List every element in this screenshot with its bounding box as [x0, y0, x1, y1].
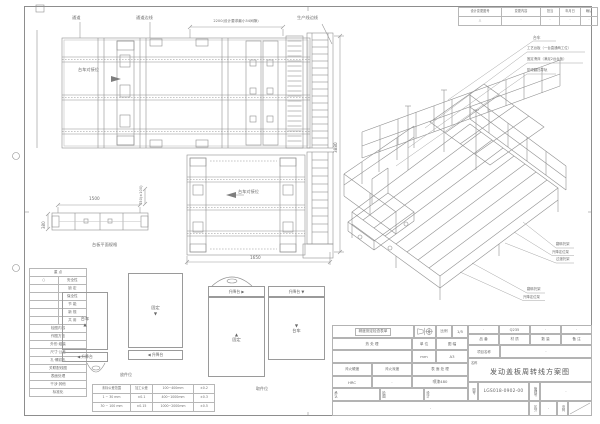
material-label: 材 质 — [499, 334, 530, 345]
rev-header: 年月日 — [560, 8, 581, 17]
tol-cell: 1000~2000mm — [153, 403, 194, 412]
tol-cell: ±0.2 — [194, 385, 215, 394]
heat-treatment-label: 热 处 理 — [332, 338, 412, 350]
iso-callout-l1: 翻转托架 — [527, 288, 541, 291]
unit-value: mm — [412, 350, 436, 363]
iso-callout-trolley: 台车 — [533, 36, 541, 40]
page-label: 页码 — [561, 405, 564, 411]
up-arrow-icon: ▲ — [83, 322, 86, 327]
rev-value: · — [541, 17, 560, 26]
iso-callout-l2: 升降定位架 — [523, 296, 540, 299]
project-label: 项目名称 — [468, 345, 500, 358]
iso-callout-bed: 固定滑床（满足2台台板） — [527, 58, 566, 61]
unit-label: 单 位 — [412, 338, 436, 350]
station-g3-lift-left: 升降台 ▶ — [208, 286, 265, 297]
station-g3-left-label: 固定 — [232, 337, 240, 343]
page-value-cell — [568, 401, 592, 416]
label-take-position: 取件位 — [256, 387, 268, 391]
station-g2-lift-label: ◀ 升降台 — [148, 352, 164, 358]
tol-cell: 加工公差 — [131, 385, 153, 394]
check-label: 检图 — [381, 391, 384, 398]
tol-cell: ±0.3 — [194, 394, 215, 403]
station-g3-lift-left-label: 升降台 ▶ — [229, 289, 245, 295]
label-put-position: 放件位 — [120, 373, 132, 377]
legend-mark — [30, 285, 59, 293]
surface-value: 喷漆480 — [412, 376, 468, 388]
station-g3-lift-right-label: 升降台 ▼ — [289, 289, 305, 295]
dwg-no-label-cell: 图号 — [468, 382, 478, 401]
design-cell: 设计 — [424, 388, 468, 401]
legend-title: 重 点 — [30, 269, 87, 277]
tol-cell: 未标公差范围 — [93, 385, 131, 394]
material-value: Q235 — [499, 325, 530, 334]
dim-380: 380 — [42, 221, 46, 229]
caption-side-view: 台板平面规格 — [92, 243, 117, 247]
class-value: · — [540, 401, 557, 416]
rev-value: △ — [459, 17, 502, 26]
dim-2200: 2200(设计要求最小54间隙) — [186, 20, 286, 24]
drawing-sheet: 设计变更图号 变更内容 担当 年月日 确认 △ · · · · 通道 通道边线 … — [0, 0, 600, 424]
station-g1-lift: ◀ 升降台 — [62, 352, 108, 362]
legend-check: 标准化 — [30, 389, 87, 397]
rev-header: 担当 — [541, 8, 560, 17]
format-label: 图 幅 — [436, 338, 468, 350]
revision-table: 设计变更图号 变更内容 担当 年月日 确认 △ · · · · — [458, 7, 598, 26]
legend-check: 表面处理 — [30, 373, 87, 381]
remark-value: · — [561, 325, 592, 334]
label-prod-edge: 生产线边线 — [297, 16, 318, 20]
tol-cell: ±0.1 — [131, 394, 153, 403]
rev-value: · — [581, 17, 598, 26]
remark-label: 备 注 — [561, 334, 592, 345]
station-g2-lift: ◀ 升降台 — [128, 350, 183, 360]
mgmt-no-value: · — [540, 382, 592, 401]
approve-label: 承认 — [333, 391, 336, 398]
mgmt-no-label-cell: 管理号 — [529, 382, 540, 401]
station-g3-box-left: ▲ 固定 — [208, 297, 265, 377]
mgmt-no-label: 管理号 — [533, 387, 536, 397]
part-no-value: · — [468, 325, 499, 334]
part-no-label: 品 番 — [468, 334, 499, 345]
label-dock-2: 台车对接位 — [238, 190, 259, 194]
tolerance-table: 未标公差范围 加工公差 100~400mm ±0.2 1 ~ 30 mm ±0.… — [92, 384, 215, 412]
tol-cell: ±0.15 — [131, 403, 153, 412]
depth-label: 淬火深度 — [372, 363, 412, 376]
dim-3880: 3880 — [334, 142, 338, 153]
projection-symbol-cell — [414, 325, 436, 338]
iso-callout-r2: 升降定位架 — [552, 251, 569, 254]
footer-cell: · — [332, 401, 529, 416]
dim-1500: 1500 — [89, 197, 100, 201]
legend-check: 关联配线图 — [30, 365, 87, 373]
station-g3-box-right: ▼ 台车 — [268, 297, 325, 360]
legend-mark — [30, 293, 59, 301]
rev-header: 设计变更图号 — [459, 8, 502, 17]
rev-value: · — [502, 17, 541, 26]
tol-cell: ±0.5 — [194, 403, 215, 412]
inspection-note-cell: 精度测定检查表单 — [332, 325, 414, 338]
dwg-no-value: LGS018-0902-00 — [478, 382, 529, 401]
legend-label: 安全性 — [58, 277, 87, 285]
projection-symbol-icon — [415, 325, 435, 338]
legend-mark: ○ — [30, 277, 59, 285]
scale-label: 比例 — [436, 325, 452, 338]
qty-value: · — [530, 325, 561, 334]
heat-treatment-value — [332, 350, 412, 363]
station-g1-lift-label: ◀ 升降台 — [77, 354, 93, 360]
iso-callout-r3: 过渡托架 — [556, 258, 570, 261]
tol-cell: 30 ~ 100 mm — [93, 403, 131, 412]
inspection-note: 精度测定检查表单 — [355, 328, 392, 336]
check-cell: 检图 — [380, 388, 424, 401]
rev-header: 变更内容 — [502, 8, 541, 17]
class-label: 区分 — [533, 405, 536, 411]
iso-callout-rail: 防倾翻挡导轨 — [527, 69, 547, 72]
name-cell: 名称 发动盖板周转线方案图 — [468, 358, 592, 382]
dwg-no-label: 图号 — [471, 388, 474, 394]
project-value: · — [500, 345, 592, 358]
tol-cell: 1 ~ 30 mm — [93, 394, 131, 403]
label-passage: 通道 — [72, 16, 80, 20]
station-g3-lift-right: 升降台 ▼ — [268, 286, 325, 297]
dim-750: 750(±100) — [140, 185, 144, 205]
tol-cell: 400~1000mm — [153, 394, 194, 403]
format-value: A3 — [436, 350, 468, 363]
tol-cell: 100~400mm — [153, 385, 194, 394]
dim-1650: 1650 — [250, 256, 261, 260]
page-label-cell: 页码 — [557, 401, 568, 416]
label-dock-1: 台车对接位 — [78, 68, 99, 72]
station-g3-right-label: 台车 — [292, 328, 300, 334]
iso-callout-plate: 工艺台板（一台直通两工位） — [527, 47, 571, 50]
qty-label: 数 量 — [530, 334, 561, 345]
hardness-value: HRC — [332, 376, 372, 388]
legend-mark — [30, 317, 59, 325]
rev-header: 确认 — [581, 8, 598, 17]
label-passage-edge: 通道边线 — [136, 16, 153, 20]
legend-mark — [30, 301, 59, 309]
down-arrow-icon: ▼ — [154, 311, 157, 316]
station-g1-box: 台车 ▲ — [62, 292, 108, 350]
surface-label: 表 面 处 理 — [412, 363, 468, 376]
name-label: 名称 — [471, 360, 477, 365]
rev-value: · — [560, 17, 581, 26]
station-g2-box: 固定 ▼ — [128, 273, 183, 348]
drawing-name: 发动盖板周转线方案图 — [490, 367, 570, 377]
class-label-cell: 区分 — [529, 401, 540, 416]
hardness-label: 淬火硬度 — [332, 363, 372, 376]
legend-check: 干涉·其他 — [30, 381, 87, 389]
scale-value: 1/5 — [452, 325, 468, 338]
design-label: 设计 — [425, 391, 428, 398]
depth-value: · — [372, 376, 412, 388]
legend-mark — [30, 309, 59, 317]
iso-callout-r1: 翻转托架 — [556, 243, 570, 246]
approve-cell: 承认 — [332, 388, 380, 401]
